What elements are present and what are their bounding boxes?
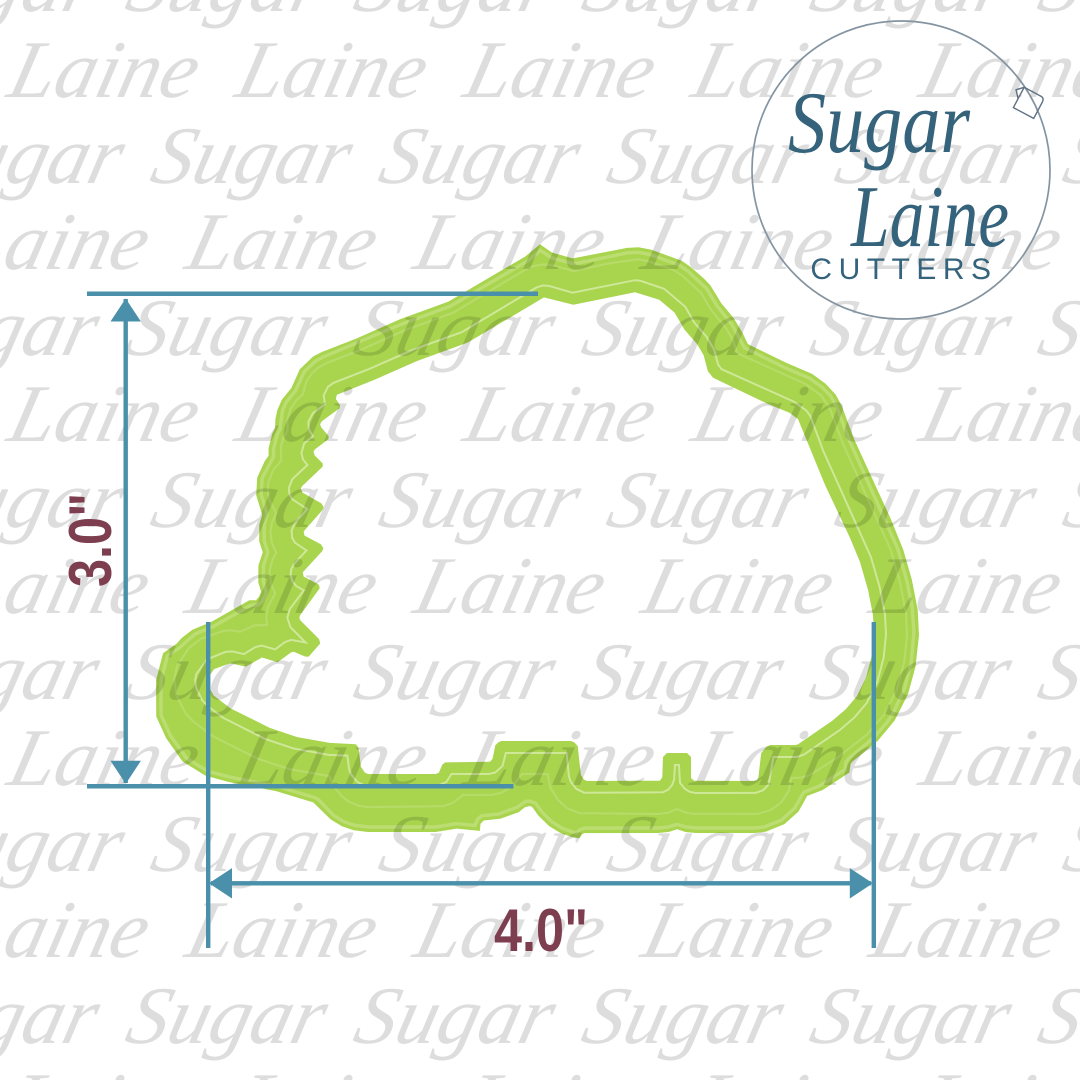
svg-text:3.0": 3.0" bbox=[57, 493, 124, 587]
svg-text:Sugar: Sugar bbox=[346, 627, 565, 718]
svg-text:Sugar: Sugar bbox=[118, 971, 337, 1062]
svg-text:Laine: Laine bbox=[633, 541, 843, 632]
svg-text:Laine: Laine bbox=[227, 369, 437, 460]
svg-text:Laine: Laine bbox=[0, 25, 210, 116]
svg-text:Sugar: Sugar bbox=[802, 627, 1021, 718]
svg-text:Sugar: Sugar bbox=[788, 75, 971, 172]
svg-text:Laine: Laine bbox=[227, 25, 437, 116]
svg-text:Sugar: Sugar bbox=[143, 111, 362, 202]
svg-text:Laine: Laine bbox=[911, 1057, 1080, 1080]
svg-text:4.0": 4.0" bbox=[494, 897, 588, 964]
svg-text:Laine: Laine bbox=[0, 197, 160, 288]
svg-text:Sugar: Sugar bbox=[802, 971, 1021, 1062]
svg-text:Sugar: Sugar bbox=[346, 283, 565, 374]
svg-text:Laine: Laine bbox=[0, 713, 210, 804]
svg-text:Laine: Laine bbox=[0, 885, 160, 976]
svg-text:Laine: Laine bbox=[405, 541, 615, 632]
svg-text:Laine: Laine bbox=[911, 713, 1080, 804]
svg-text:Sugar: Sugar bbox=[599, 799, 818, 890]
svg-text:Laine: Laine bbox=[455, 25, 665, 116]
svg-text:Sugar: Sugar bbox=[802, 283, 1021, 374]
svg-text:Sugar: Sugar bbox=[599, 455, 818, 546]
svg-text:Sugar: Sugar bbox=[143, 799, 362, 890]
svg-text:Laine: Laine bbox=[683, 1057, 893, 1080]
svg-text:Laine: Laine bbox=[455, 713, 665, 804]
svg-text:CUTTERS: CUTTERS bbox=[810, 253, 997, 286]
svg-text:Laine: Laine bbox=[455, 369, 665, 460]
svg-text:Laine: Laine bbox=[849, 169, 1009, 266]
svg-text:Laine: Laine bbox=[455, 1057, 665, 1080]
svg-text:Sugar: Sugar bbox=[574, 627, 793, 718]
svg-text:Sugar: Sugar bbox=[0, 111, 134, 202]
svg-text:Laine: Laine bbox=[683, 369, 893, 460]
svg-text:Sugar: Sugar bbox=[143, 455, 362, 546]
svg-text:Laine: Laine bbox=[405, 197, 615, 288]
svg-text:Laine: Laine bbox=[227, 1057, 437, 1080]
svg-text:Laine: Laine bbox=[683, 713, 893, 804]
svg-text:Laine: Laine bbox=[911, 369, 1080, 460]
svg-text:Sugar: Sugar bbox=[599, 111, 818, 202]
svg-text:Laine: Laine bbox=[177, 197, 387, 288]
svg-text:Laine: Laine bbox=[0, 1057, 210, 1080]
svg-text:Sugar: Sugar bbox=[827, 455, 1046, 546]
svg-text:Sugar: Sugar bbox=[371, 799, 590, 890]
svg-text:Laine: Laine bbox=[861, 885, 1071, 976]
svg-text:Sugar: Sugar bbox=[574, 283, 793, 374]
svg-text:Laine: Laine bbox=[227, 713, 437, 804]
svg-text:Sugar: Sugar bbox=[574, 971, 793, 1062]
svg-text:Sugar: Sugar bbox=[371, 455, 590, 546]
svg-text:Sugar: Sugar bbox=[371, 111, 590, 202]
svg-text:Sugar: Sugar bbox=[346, 971, 565, 1062]
svg-text:Laine: Laine bbox=[177, 541, 387, 632]
svg-text:Laine: Laine bbox=[633, 885, 843, 976]
svg-text:Laine: Laine bbox=[0, 369, 210, 460]
svg-text:Sugar: Sugar bbox=[0, 799, 134, 890]
svg-text:Sugar: Sugar bbox=[118, 283, 337, 374]
svg-text:Sugar: Sugar bbox=[118, 627, 337, 718]
svg-text:Laine: Laine bbox=[861, 541, 1071, 632]
